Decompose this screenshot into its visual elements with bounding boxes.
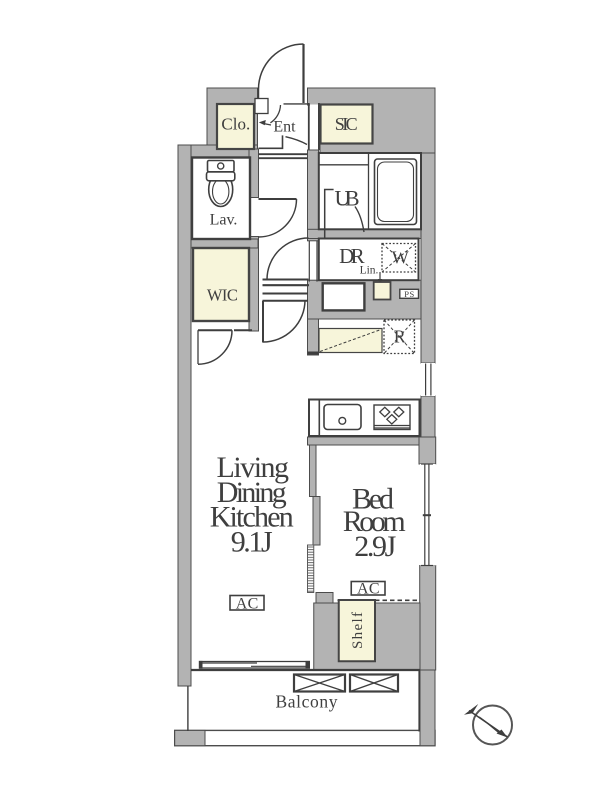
svg-text:R: R [394,327,406,347]
svg-text:W: W [392,248,409,268]
svg-text:2.9J: 2.9J [354,530,396,563]
svg-text:9.1J: 9.1J [231,525,273,558]
svg-text:WIC: WIC [207,286,238,305]
svg-text:Shelf: Shelf [350,612,366,649]
svg-text:SIC: SIC [335,114,358,134]
svg-text:Clo.: Clo. [221,115,250,134]
svg-text:Lav.: Lav. [210,212,238,229]
svg-text:Lin.: Lin. [360,265,379,277]
svg-text:PS: PS [404,289,414,299]
svg-text:Balcony: Balcony [276,692,338,712]
svg-text:AC: AC [357,580,380,597]
svg-text:AC: AC [236,595,259,612]
svg-text:Ent: Ent [273,119,296,136]
